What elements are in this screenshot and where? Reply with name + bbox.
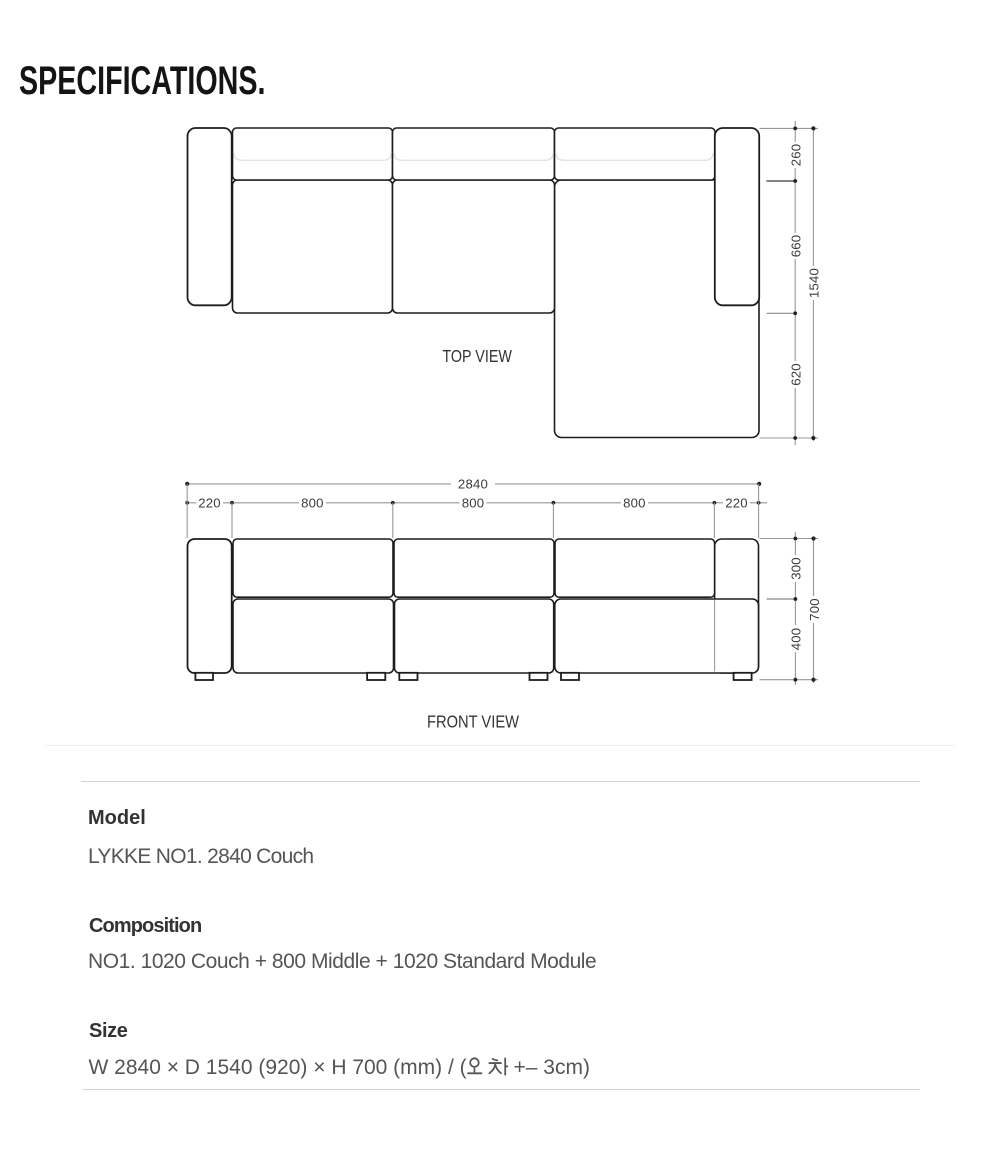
svg-text:260: 260 [789, 144, 804, 167]
svg-text:800: 800 [462, 496, 485, 511]
svg-text:400: 400 [789, 628, 804, 651]
svg-text:800: 800 [301, 496, 324, 511]
svg-text:660: 660 [789, 235, 804, 258]
svg-text:800: 800 [623, 496, 646, 511]
svg-text:620: 620 [789, 363, 804, 386]
svg-text:1540: 1540 [807, 268, 822, 298]
svg-text:TOP VIEW: TOP VIEW [442, 346, 512, 366]
svg-text:220: 220 [725, 496, 748, 511]
svg-text:2840: 2840 [458, 477, 488, 492]
svg-text:220: 220 [198, 496, 221, 511]
svg-text:300: 300 [789, 557, 804, 580]
svg-text:FRONT VIEW: FRONT VIEW [427, 712, 520, 732]
svg-text:700: 700 [807, 598, 822, 621]
